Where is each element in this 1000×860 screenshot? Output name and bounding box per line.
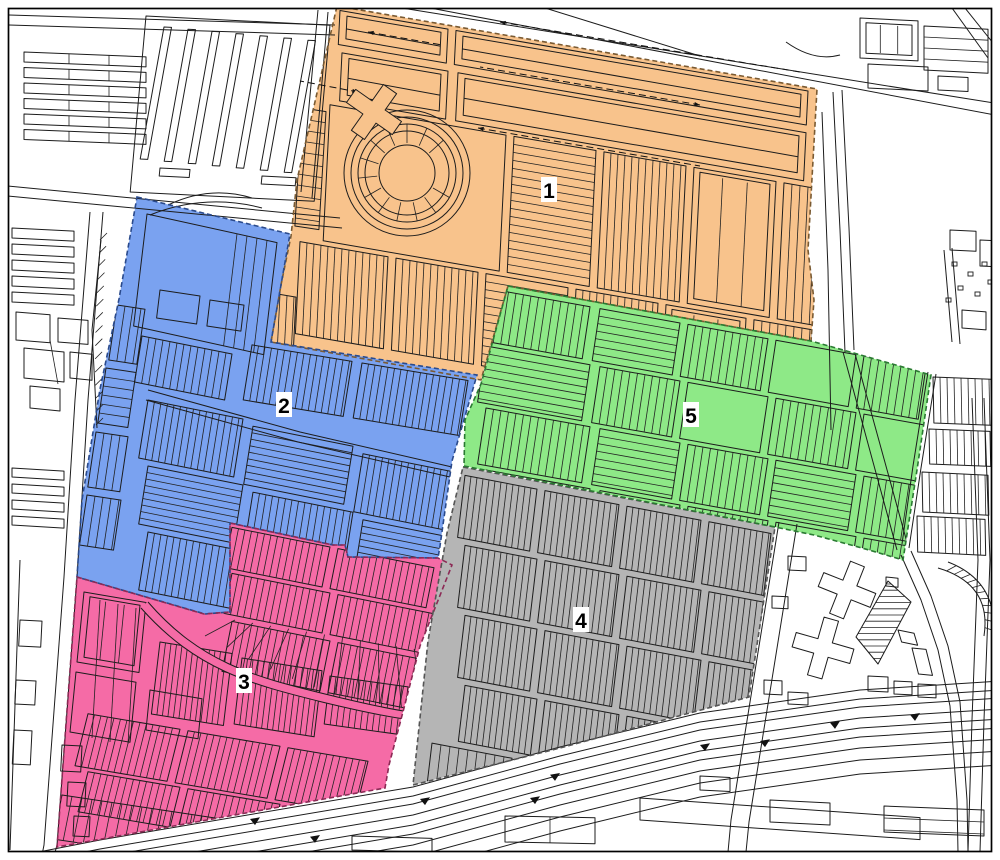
svg-text:4: 4 [575,610,587,633]
svg-text:5: 5 [685,405,697,428]
svg-text:2: 2 [278,395,290,418]
svg-text:3: 3 [238,671,250,694]
svg-text:1: 1 [543,180,555,203]
